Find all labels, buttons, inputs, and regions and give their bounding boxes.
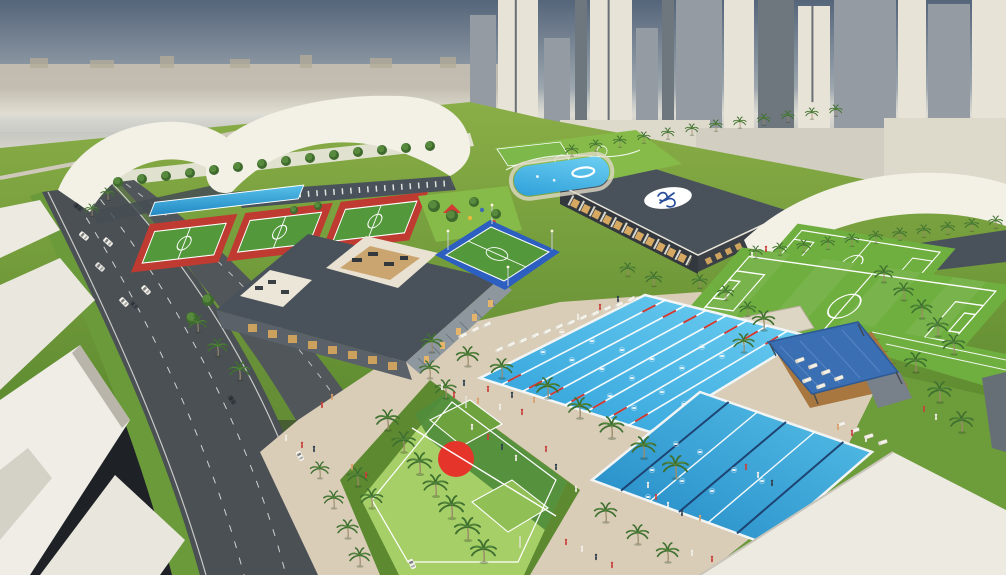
person bbox=[471, 424, 473, 431]
person bbox=[515, 455, 517, 462]
person bbox=[533, 397, 535, 404]
person bbox=[487, 386, 489, 393]
round-tree bbox=[137, 174, 147, 184]
person bbox=[555, 464, 557, 471]
person bbox=[581, 546, 583, 553]
person bbox=[865, 436, 867, 443]
person bbox=[765, 246, 767, 253]
tower bbox=[758, 0, 794, 150]
person bbox=[521, 409, 523, 416]
person bbox=[667, 502, 669, 509]
person bbox=[321, 402, 323, 409]
person bbox=[477, 398, 479, 405]
round-tree bbox=[290, 206, 298, 214]
round-tree bbox=[257, 159, 267, 169]
round-tree bbox=[491, 209, 501, 219]
round-tree bbox=[113, 177, 123, 187]
person bbox=[837, 424, 839, 431]
person bbox=[757, 472, 759, 479]
person bbox=[301, 442, 303, 449]
person bbox=[313, 446, 315, 453]
person bbox=[647, 482, 649, 489]
person bbox=[711, 556, 713, 563]
round-tree bbox=[209, 165, 219, 175]
person bbox=[691, 550, 693, 557]
round-tree bbox=[202, 294, 214, 306]
round-tree bbox=[428, 200, 440, 212]
round-tree bbox=[314, 202, 322, 210]
tower bbox=[724, 0, 754, 130]
person bbox=[745, 464, 747, 471]
round-tree bbox=[161, 171, 171, 181]
person bbox=[595, 554, 597, 561]
person bbox=[351, 464, 353, 471]
sports-complex-rendering bbox=[0, 0, 1006, 575]
round-tree bbox=[305, 153, 315, 163]
person bbox=[935, 414, 937, 421]
round-tree bbox=[401, 143, 411, 153]
person bbox=[923, 406, 925, 413]
person bbox=[771, 480, 773, 487]
person bbox=[463, 380, 465, 387]
person bbox=[501, 444, 503, 451]
round-tree bbox=[469, 197, 479, 207]
person bbox=[487, 434, 489, 441]
aerial-render-canvas bbox=[0, 0, 1006, 575]
person bbox=[611, 562, 613, 569]
round-tree bbox=[446, 210, 458, 222]
person bbox=[545, 446, 547, 453]
person bbox=[851, 430, 853, 437]
person bbox=[617, 296, 619, 303]
person bbox=[751, 252, 753, 259]
person bbox=[599, 304, 601, 311]
person bbox=[577, 314, 579, 321]
person bbox=[681, 510, 683, 517]
round-tree bbox=[353, 147, 363, 157]
person bbox=[441, 384, 443, 391]
person bbox=[575, 486, 577, 493]
person bbox=[285, 435, 287, 442]
tower bbox=[898, 0, 926, 130]
round-tree bbox=[377, 145, 387, 155]
person bbox=[565, 539, 567, 546]
round-tree bbox=[233, 162, 243, 172]
person bbox=[511, 392, 513, 399]
person bbox=[655, 494, 657, 501]
round-tree bbox=[281, 156, 291, 166]
round-tree bbox=[425, 141, 435, 151]
person bbox=[365, 472, 367, 479]
round-tree bbox=[329, 150, 339, 160]
person bbox=[499, 404, 501, 411]
round-tree bbox=[185, 168, 195, 178]
person bbox=[331, 394, 333, 401]
person bbox=[453, 392, 455, 399]
person bbox=[699, 515, 701, 522]
